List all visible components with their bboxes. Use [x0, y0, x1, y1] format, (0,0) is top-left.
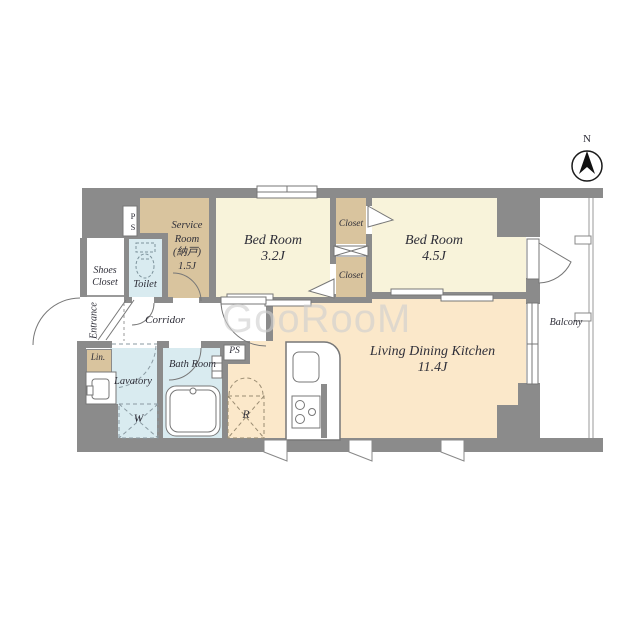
shoes-closet-label-line: Closet — [84, 277, 126, 289]
closet-lower-door-icon — [309, 279, 334, 298]
bedroom-large-size: 4.5J — [370, 249, 498, 265]
bedroom-large-name: Bed Room — [370, 233, 498, 249]
washer-label: W — [119, 413, 158, 426]
service-room-label-line: Room — [156, 233, 218, 247]
window-between-closets — [334, 246, 368, 256]
compass-north-label: N — [579, 133, 595, 146]
bedroom-small-name: Bed Room — [214, 233, 332, 249]
toilet-label: Toilet — [124, 279, 166, 291]
ps-top-label: PS — [124, 209, 137, 235]
closet-upper-door-icon — [368, 206, 393, 227]
ps-bottom-label: PS — [224, 346, 245, 357]
entrance-step-marks — [98, 300, 134, 341]
ldk-size: 11.4J — [330, 360, 535, 376]
refrigerator-space-icon — [228, 378, 264, 438]
watermark: GooRooM — [222, 297, 411, 342]
closet-upper-label: Closet — [333, 219, 369, 230]
balcony-door — [527, 239, 571, 283]
corridor-label: Corridor — [133, 314, 197, 327]
balcony-label: Balcony — [541, 317, 591, 329]
ldk-name: Living Dining Kitchen — [330, 344, 535, 360]
service-room-door-arc — [173, 273, 201, 301]
bathroom-label: Bath Room — [161, 359, 224, 371]
closet-lower-label: Closet — [333, 271, 369, 282]
bedroom-small-size: 3.2J — [214, 249, 332, 265]
window-top — [257, 186, 317, 198]
lavatory-label: Lavatory — [106, 376, 160, 388]
shoes-closet-label-line: Shoes — [84, 265, 126, 277]
service-room-label-line: Service — [156, 219, 218, 233]
floor-plan-canvas: Service Room (納戸) 1.5J Bed Room 3.2J Bed… — [0, 0, 640, 640]
refrigerator-label: R — [228, 409, 264, 422]
shoes-closet-label: Shoes Closet — [84, 265, 126, 289]
entrance-label: Entrance — [89, 292, 102, 350]
kitchen-sink-icon — [293, 352, 319, 382]
bedroom-small-label: Bed Room 3.2J — [214, 233, 332, 265]
service-room-label: Service Room (納戸) 1.5J — [156, 219, 218, 273]
compass-icon — [572, 151, 602, 181]
service-room-label-line: (納戸) — [156, 246, 218, 260]
ldk-label: Living Dining Kitchen 11.4J — [330, 344, 535, 376]
linen-label: Lin. — [86, 352, 110, 362]
vent-icon — [349, 440, 372, 461]
toilet-fixture-icon — [136, 243, 155, 278]
service-room-label-line: 1.5J — [156, 260, 218, 274]
vent-icon — [441, 440, 464, 461]
bedroom-large-label: Bed Room 4.5J — [370, 233, 498, 265]
entrance-door-arc — [33, 298, 80, 345]
vent-icon — [264, 440, 287, 461]
